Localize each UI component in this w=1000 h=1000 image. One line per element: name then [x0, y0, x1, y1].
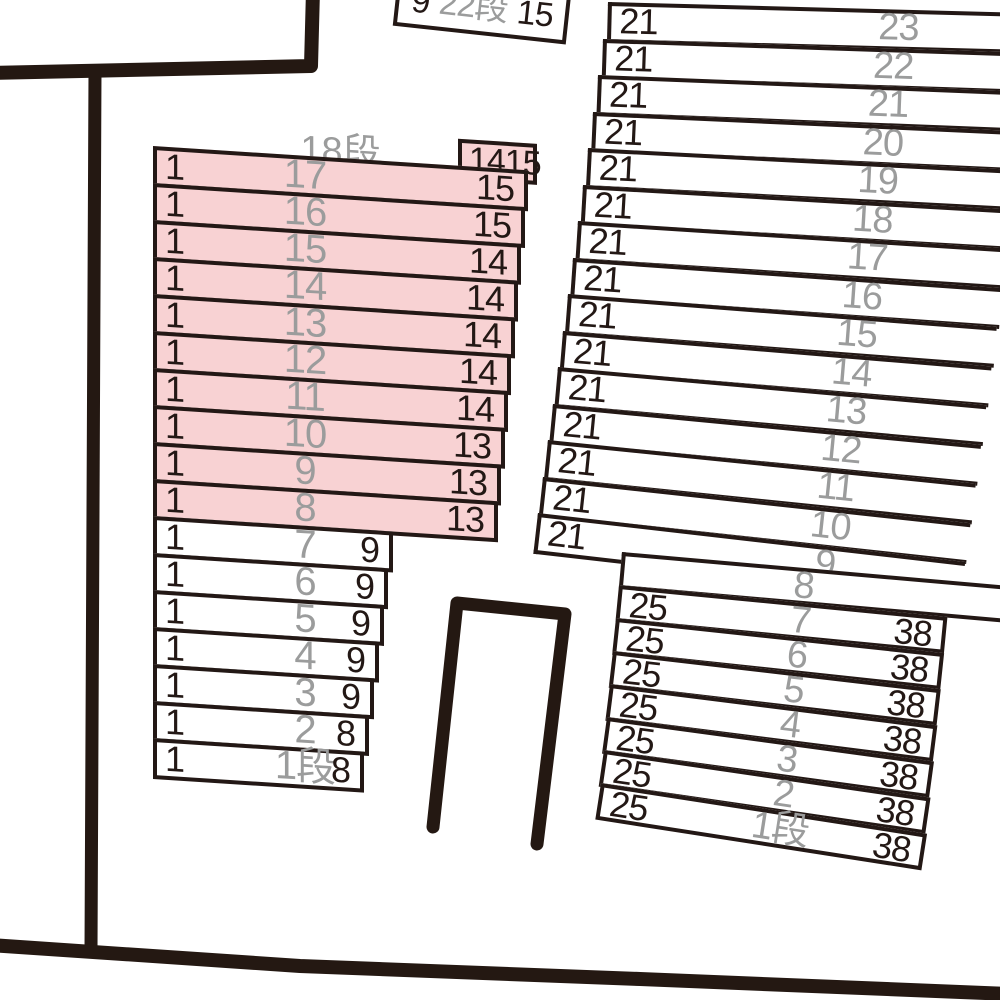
- row-right-label: 38: [874, 795, 916, 828]
- row-right-label: 38: [885, 688, 926, 720]
- row-center-label: 17: [828, 242, 906, 274]
- row-right-label: 15: [476, 171, 514, 205]
- bottom-boundary-path: [0, 945, 1000, 994]
- row-left-label: 25: [608, 790, 650, 824]
- row-right-label: 9: [351, 607, 370, 640]
- row-right-label: 14: [466, 281, 504, 315]
- row-center-label: 10: [791, 509, 869, 544]
- row-right-label: 8: [331, 754, 350, 787]
- row-left-label: 21: [619, 7, 658, 36]
- row-left-label: 21: [577, 300, 617, 331]
- row-left-label: 21: [604, 117, 643, 147]
- row-right-label: 14: [456, 392, 494, 426]
- row-left-label: 21: [551, 483, 592, 515]
- row-right-label: 38: [882, 724, 923, 757]
- row-right-label: 9: [346, 643, 365, 676]
- row-center-label: 6: [267, 564, 343, 600]
- row-center-label: 7: [267, 527, 343, 563]
- row-center-label: 12: [802, 433, 880, 467]
- row-right-label: 38: [889, 653, 930, 685]
- row-center-label: 14: [267, 268, 343, 304]
- row-center-label: 14: [812, 356, 890, 389]
- row-center-label: 21: [850, 90, 927, 120]
- row-right-label: 15: [473, 208, 511, 242]
- row-center-label: 19: [839, 166, 916, 197]
- row-left-label: 1: [165, 743, 184, 776]
- row-left-label: 21: [614, 44, 653, 73]
- row-right-label: 14: [463, 318, 501, 352]
- left-tier-block: 18段 14 15 117151161511514114141131411214…: [153, 146, 528, 803]
- row-right-label: 13: [446, 502, 484, 536]
- tier-22-right-label: 15: [515, 0, 555, 36]
- row-center-label: 18: [834, 204, 911, 235]
- row-right-label: 9: [360, 533, 379, 566]
- row-center-label: 13: [807, 394, 885, 428]
- plot-map-canvas: 9 22段 15 18段 14 15 117151161511514114141…: [0, 0, 1000, 1000]
- row-left-label: 1: [165, 595, 184, 628]
- row-center-label: 23: [860, 14, 937, 43]
- row-center-label: 10: [267, 416, 343, 452]
- row-left-label: 1: [165, 558, 184, 591]
- row-left-label: 1: [165, 262, 184, 295]
- row-center-label: 12: [267, 342, 343, 378]
- row-left-label: 21: [598, 154, 637, 184]
- row-center-label: 11: [796, 471, 874, 506]
- row-center-label: 22: [855, 52, 932, 81]
- row-center-label: 1段: [740, 810, 819, 848]
- row-center-label: 8: [765, 570, 843, 604]
- row-right-label: 13: [453, 428, 491, 462]
- row-left-label: 21: [557, 446, 598, 478]
- row-left-label: 1: [165, 373, 184, 406]
- row-right-label: 8: [336, 717, 355, 750]
- tier-22-center-label: 22段: [437, 0, 511, 31]
- row-center-label: 16: [823, 280, 901, 312]
- row-right-label: 14: [469, 244, 507, 278]
- row-left-label: 21: [593, 190, 633, 220]
- row-left-label: 1: [165, 447, 184, 480]
- row-right-label: 14: [459, 355, 497, 389]
- row-left-label: 1: [165, 151, 184, 184]
- row-center-label: 6: [758, 638, 836, 673]
- row-left-label: 1: [165, 410, 184, 443]
- tier-22-box: 9 22段 15: [393, 0, 572, 44]
- row-left-label: 1: [165, 299, 184, 332]
- row-left-label: 1: [165, 706, 184, 739]
- row-left-label: 1: [165, 521, 184, 554]
- row-center-label: 5: [267, 601, 343, 637]
- row-left-label: 21: [572, 336, 612, 367]
- row-left-label: 21: [583, 263, 623, 294]
- row-center-label: 4: [267, 638, 343, 674]
- row-center-label: 7: [761, 604, 839, 638]
- row-left-label: 21: [546, 519, 587, 551]
- row-left-label: 1: [165, 225, 184, 258]
- row-center-label: 15: [267, 231, 343, 267]
- row-center-label: 8: [267, 490, 343, 526]
- row-right-label: 13: [449, 465, 487, 499]
- left-block-rows: 1171511615115141141411314112141111411013…: [153, 146, 528, 803]
- row-right-label: 38: [892, 617, 933, 649]
- row-left-label: 1: [165, 632, 184, 665]
- row-right-label: 38: [878, 759, 919, 792]
- row-center-label: 20: [844, 128, 921, 158]
- row-left-label: 1: [165, 669, 184, 702]
- row-left-label: 21: [562, 410, 603, 441]
- row-left-label: 1: [165, 484, 184, 517]
- row-right-label: 9: [355, 570, 374, 603]
- row-left-label: 21: [588, 227, 628, 257]
- row-center-label: 15: [818, 318, 896, 351]
- row-center-label: 16: [267, 194, 343, 230]
- row-center-label: 11: [267, 379, 343, 415]
- row-center-label: 13: [267, 305, 343, 341]
- tier-22-left-label: 9: [409, 0, 431, 22]
- top-left-boundary-path: [0, 0, 313, 73]
- row-right-label: 38: [871, 831, 913, 865]
- vertical-path: [91, 72, 95, 950]
- row-center-label: 17: [267, 157, 343, 193]
- row-left-label: 21: [567, 373, 607, 404]
- row-center-label: 9: [267, 453, 343, 489]
- row-center-label: 3: [267, 675, 343, 711]
- row-right-label: 9: [341, 680, 360, 713]
- row-left-label: 1: [165, 336, 184, 369]
- row-left-label: 21: [609, 80, 648, 109]
- row-left-label: 1: [165, 188, 184, 221]
- plot-row: 11段8: [153, 738, 364, 793]
